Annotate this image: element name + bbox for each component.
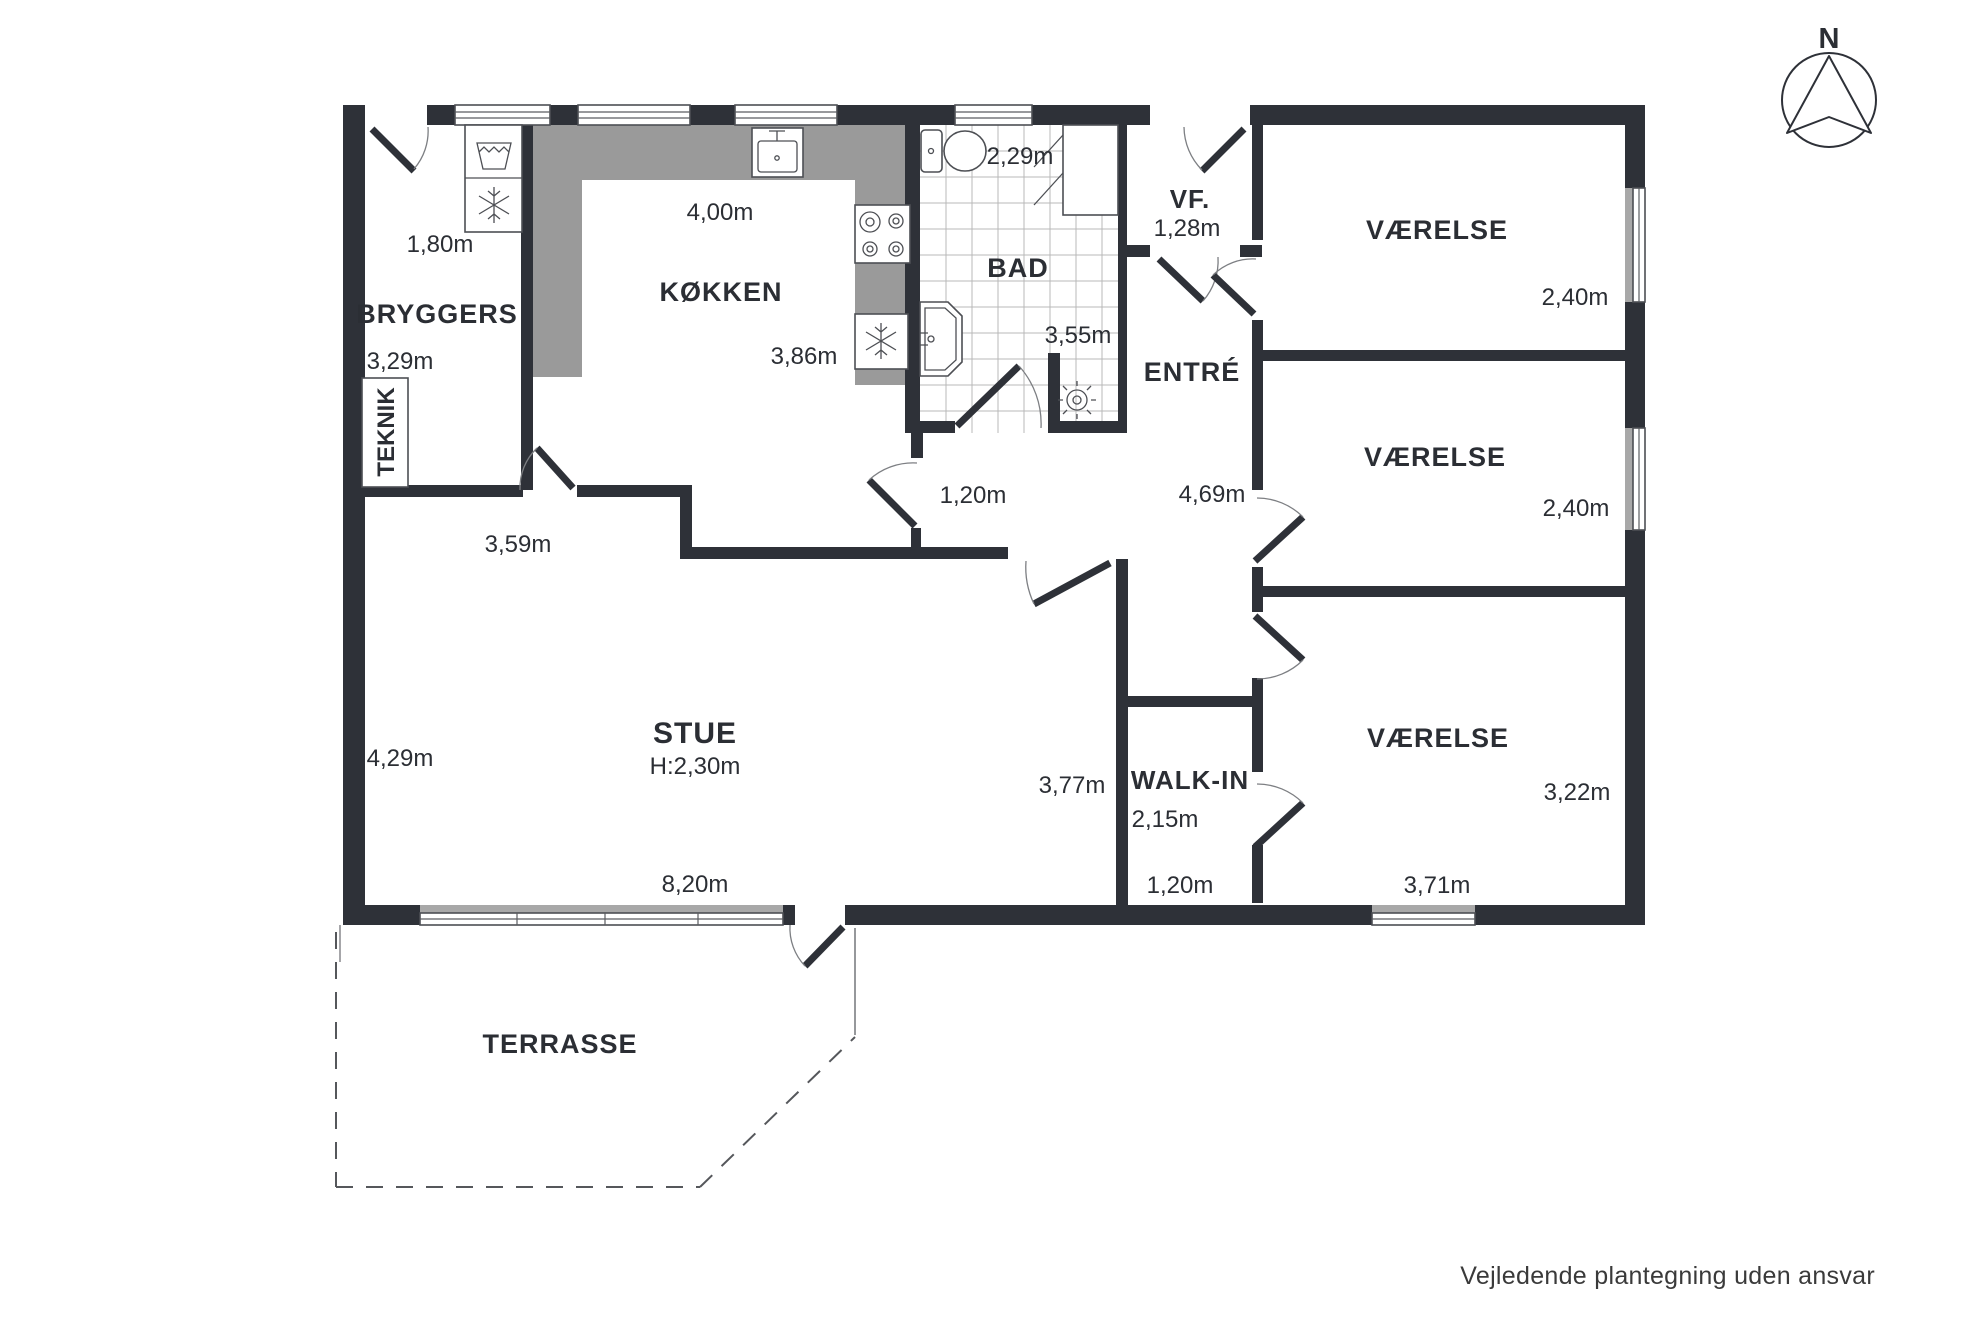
window-sill bbox=[1625, 428, 1633, 530]
wall-right-seg bbox=[1625, 302, 1645, 428]
wall-bottom-seg bbox=[1475, 905, 1645, 925]
counter-top bbox=[533, 125, 905, 180]
wall-vf-entre bbox=[1127, 245, 1150, 257]
wall-right-seg bbox=[1625, 530, 1645, 925]
dim-vaerelse3-depth: 3,22m bbox=[1544, 779, 1611, 806]
door-arc bbox=[1257, 660, 1303, 679]
door-leaf bbox=[805, 927, 843, 966]
door-leaf bbox=[1255, 517, 1303, 561]
bath-sink-icon bbox=[920, 302, 962, 376]
kitchen-sink bbox=[752, 128, 803, 177]
wall-left bbox=[343, 105, 365, 925]
wall-vf-entre bbox=[1240, 245, 1262, 257]
window-room1 bbox=[1625, 188, 1645, 302]
room-label-vaerelse1: VÆRELSE bbox=[1366, 215, 1508, 245]
wall-room-divider-1 bbox=[1262, 350, 1625, 361]
dim-kokken-depth: 3,86m bbox=[771, 343, 838, 370]
room-label-entre: ENTRÉ bbox=[1144, 356, 1241, 387]
wall-corridor-seg bbox=[1252, 320, 1263, 490]
door-vf-entre bbox=[1159, 257, 1218, 301]
dim-stue-height: H:2,30m bbox=[650, 753, 741, 780]
kitchen-counters bbox=[533, 125, 905, 385]
compass: N bbox=[1782, 23, 1876, 147]
dim-stue-right: 3,77m bbox=[1039, 772, 1106, 799]
door-leaf bbox=[372, 129, 414, 171]
window-frame bbox=[735, 105, 837, 125]
door-vaerelse1 bbox=[1213, 259, 1256, 314]
floor-plan-page: BRYGGERS 3,29m 1,80m TEKNIK 4,00m KØKKEN… bbox=[0, 0, 1984, 1323]
dim-vaerelse3-width: 3,71m bbox=[1404, 872, 1471, 899]
window-frame bbox=[455, 105, 550, 125]
room-label-bad: BAD bbox=[987, 253, 1049, 283]
wall-bottom-seg bbox=[783, 905, 795, 925]
wall-stue-kitchen bbox=[680, 547, 1008, 559]
room-label-kokken: KØKKEN bbox=[659, 277, 782, 307]
compass-needle-icon bbox=[1787, 56, 1871, 133]
door-arc bbox=[414, 127, 428, 169]
wall-top-seg bbox=[1250, 105, 1645, 125]
wall-stue-top bbox=[577, 485, 692, 497]
room-label-walkin: WALK-IN bbox=[1131, 765, 1249, 795]
counter-left bbox=[533, 125, 582, 377]
window-frame bbox=[578, 105, 690, 125]
window-room3 bbox=[1372, 905, 1475, 925]
wall-right-seg bbox=[1625, 105, 1645, 188]
door-entre-stue bbox=[1026, 561, 1110, 604]
wall-top-seg bbox=[1032, 105, 1150, 125]
wall-room-divider-2 bbox=[1252, 586, 1625, 597]
dim-bryggers-width: 1,80m bbox=[407, 231, 474, 258]
window-sill bbox=[1625, 188, 1633, 302]
door-arc bbox=[1257, 784, 1303, 803]
dim-entre-depth: 4,69m bbox=[1179, 481, 1246, 508]
door-terrace bbox=[790, 925, 843, 966]
dim-vaerelse1-width: 2,40m bbox=[1542, 284, 1609, 311]
wall-corridor-seg bbox=[1252, 678, 1263, 772]
door-arc bbox=[1213, 259, 1256, 275]
wall-bath-bottom bbox=[1048, 421, 1118, 433]
floor-plan-drawing: BRYGGERS 3,29m 1,80m TEKNIK 4,00m KØKKEN… bbox=[0, 0, 1984, 1323]
wall-top-seg bbox=[690, 105, 735, 125]
door-leaf bbox=[1159, 259, 1203, 301]
wall-top-seg bbox=[427, 105, 455, 125]
stove-icon bbox=[855, 205, 910, 263]
door-arc bbox=[869, 463, 917, 480]
wall-stue-right bbox=[1116, 559, 1128, 905]
door-leaf bbox=[869, 480, 915, 526]
wall-bottom-seg bbox=[343, 905, 420, 925]
dim-stue-left: 4,29m bbox=[367, 745, 434, 772]
wall-walkin-top bbox=[1128, 696, 1252, 707]
wall-kitchen-bath bbox=[905, 125, 920, 433]
wall-shower-stub bbox=[1048, 353, 1060, 421]
door-leaf bbox=[1034, 563, 1110, 604]
window-sill bbox=[420, 905, 783, 913]
wall-kitchen-entre bbox=[911, 433, 923, 458]
window-stue bbox=[420, 905, 783, 925]
door-arc bbox=[1184, 127, 1202, 170]
wall-door-post bbox=[911, 528, 921, 559]
dim-vf-width: 1,28m bbox=[1154, 215, 1221, 242]
dim-opening: 1,20m bbox=[940, 482, 1007, 509]
door-vaerelse3 bbox=[1255, 616, 1303, 679]
window-frame bbox=[955, 105, 1032, 125]
door-leaf bbox=[1255, 616, 1303, 660]
window-room2 bbox=[1625, 428, 1645, 530]
dim-stue-bottom: 8,20m bbox=[662, 871, 729, 898]
door-vaerelse2 bbox=[1255, 498, 1303, 561]
door-leaf bbox=[1213, 275, 1254, 314]
window-top-2 bbox=[578, 105, 690, 125]
door-leaf bbox=[1255, 803, 1303, 847]
toilet-tank bbox=[921, 130, 942, 172]
door-vf-entry bbox=[1184, 127, 1244, 171]
room-label-vf: VF. bbox=[1170, 184, 1211, 214]
wall-bath-bottom bbox=[920, 421, 955, 433]
window-sill bbox=[1372, 905, 1475, 913]
dim-vaerelse2-width: 2,40m bbox=[1543, 495, 1610, 522]
room-label-bryggers: BRYGGERS bbox=[356, 299, 518, 329]
dim-walkin-depth: 2,15m bbox=[1132, 806, 1199, 833]
door-bryggers-entry bbox=[372, 127, 428, 171]
dim-walkin-width: 1,20m bbox=[1147, 872, 1214, 899]
window-top-3 bbox=[735, 105, 837, 125]
wall-top-seg bbox=[550, 105, 578, 125]
toilet-bowl bbox=[944, 131, 986, 171]
wall-top-seg bbox=[837, 105, 955, 125]
compass-north-label: N bbox=[1819, 23, 1840, 55]
door-walkin bbox=[1255, 784, 1303, 847]
room-label-stue: STUE bbox=[653, 717, 737, 750]
wall-top-seg bbox=[343, 105, 365, 125]
dim-bad-width: 2,29m bbox=[987, 143, 1054, 170]
door-arc bbox=[1026, 561, 1034, 604]
wall-corridor-seg bbox=[1252, 125, 1263, 240]
door-leaf bbox=[1202, 129, 1244, 171]
dim-kokken-width: 4,00m bbox=[687, 199, 754, 226]
shower-base bbox=[1063, 125, 1118, 215]
terrace-edge-diagonal bbox=[700, 1037, 855, 1187]
door-arc bbox=[1257, 498, 1303, 517]
door-leaf bbox=[537, 448, 573, 488]
dim-bryggers-depth: 3,29m bbox=[367, 348, 434, 375]
room-label-terrasse: TERRASSE bbox=[482, 1029, 637, 1059]
door-arc bbox=[790, 925, 805, 966]
window-top-4 bbox=[955, 105, 1032, 125]
window-top-1 bbox=[455, 105, 550, 125]
wall-bottom-seg bbox=[845, 905, 1372, 925]
door-kitchen-entre bbox=[869, 463, 917, 526]
toilet-icon bbox=[921, 130, 986, 172]
freezer-icon-kitchen bbox=[855, 314, 908, 369]
room-label-vaerelse3: VÆRELSE bbox=[1367, 723, 1509, 753]
wall-bath-right bbox=[1118, 125, 1127, 433]
dim-stue-top: 3,59m bbox=[485, 531, 552, 558]
wall-corridor-seg bbox=[1252, 845, 1263, 903]
room-label-teknik: TEKNIK bbox=[373, 387, 400, 477]
dim-bad-depth: 3,55m bbox=[1045, 322, 1112, 349]
room-label-vaerelse2: VÆRELSE bbox=[1364, 442, 1506, 472]
stove-top bbox=[855, 205, 910, 263]
disclaimer-text: Vejledende plantegning uden ansvar bbox=[1460, 1262, 1875, 1290]
